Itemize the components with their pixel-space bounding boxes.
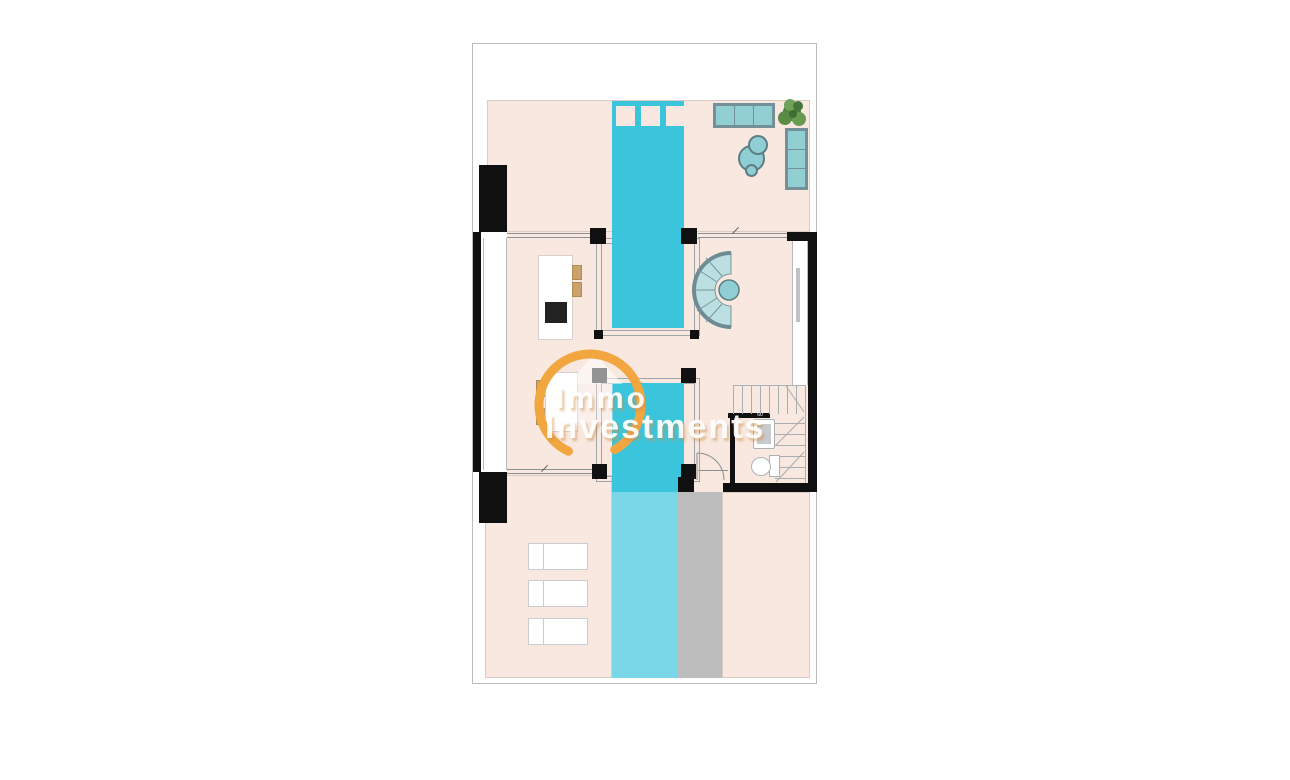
sun-lounger xyxy=(528,618,588,645)
left-wall xyxy=(473,232,481,472)
sofa-cushion xyxy=(788,150,805,168)
wall-pier-top-left xyxy=(479,165,507,232)
sofa-cushion xyxy=(735,106,753,125)
plot-boundary-bottom xyxy=(472,683,817,684)
plot-boundary-top xyxy=(472,43,817,44)
sofa-cushion xyxy=(716,106,734,125)
toilet-bowl xyxy=(751,457,771,476)
wall-pier-bottom-left xyxy=(479,472,507,523)
three-seat-sofa-vertical xyxy=(785,128,808,190)
sun-lounger-divider xyxy=(543,581,544,606)
sun-lounger-divider xyxy=(543,619,544,644)
mullion-post xyxy=(594,330,603,339)
swimming-pool-upper xyxy=(612,101,684,328)
left-window-band xyxy=(483,238,507,470)
floor-plan-canvas: 60 xyxy=(0,0,1290,780)
mullion-post xyxy=(681,368,696,383)
sliding-glass-door-track xyxy=(698,233,787,234)
sun-lounger xyxy=(528,543,588,570)
pool-steps xyxy=(641,106,660,126)
sliding-glass-door-track xyxy=(507,473,592,474)
sliding-glass-door-track xyxy=(507,469,592,470)
mullion-post xyxy=(592,368,607,383)
wall-right xyxy=(808,232,817,492)
mullion-post xyxy=(590,228,606,244)
sliding-glass-door-track xyxy=(507,237,594,238)
sun-lounger-divider xyxy=(543,544,544,569)
mullion-post xyxy=(690,330,699,339)
sliding-glass-door-track xyxy=(698,237,787,238)
right-window-band xyxy=(792,241,808,385)
sofa-cushion xyxy=(788,131,805,149)
lower-right-terrace-floor xyxy=(722,492,810,678)
sun-lounger xyxy=(528,580,588,607)
kitchen-island xyxy=(538,255,573,340)
sofa-cushion xyxy=(754,106,772,125)
bar-stool xyxy=(572,265,582,280)
radiator xyxy=(796,268,800,322)
walkway xyxy=(678,492,722,678)
swimming-pool-outdoor xyxy=(612,492,678,678)
mullion-post xyxy=(592,464,607,479)
wall-door-stub xyxy=(678,477,694,492)
cooktop xyxy=(545,302,567,323)
three-seat-sofa-horizontal xyxy=(713,103,775,128)
mullion-post xyxy=(681,228,697,244)
sliding-glass-door-track xyxy=(507,233,594,234)
watermark-brand-line2: Investments xyxy=(545,410,765,444)
coffee-table-small xyxy=(745,164,758,177)
wall-bottom-right xyxy=(723,483,817,492)
hall-door-track xyxy=(698,470,728,471)
sofa-cushion xyxy=(788,169,805,187)
pool-steps xyxy=(616,106,635,126)
coffee-table-medium xyxy=(748,135,768,155)
bar-stool xyxy=(572,282,582,297)
pool-steps xyxy=(666,106,685,126)
